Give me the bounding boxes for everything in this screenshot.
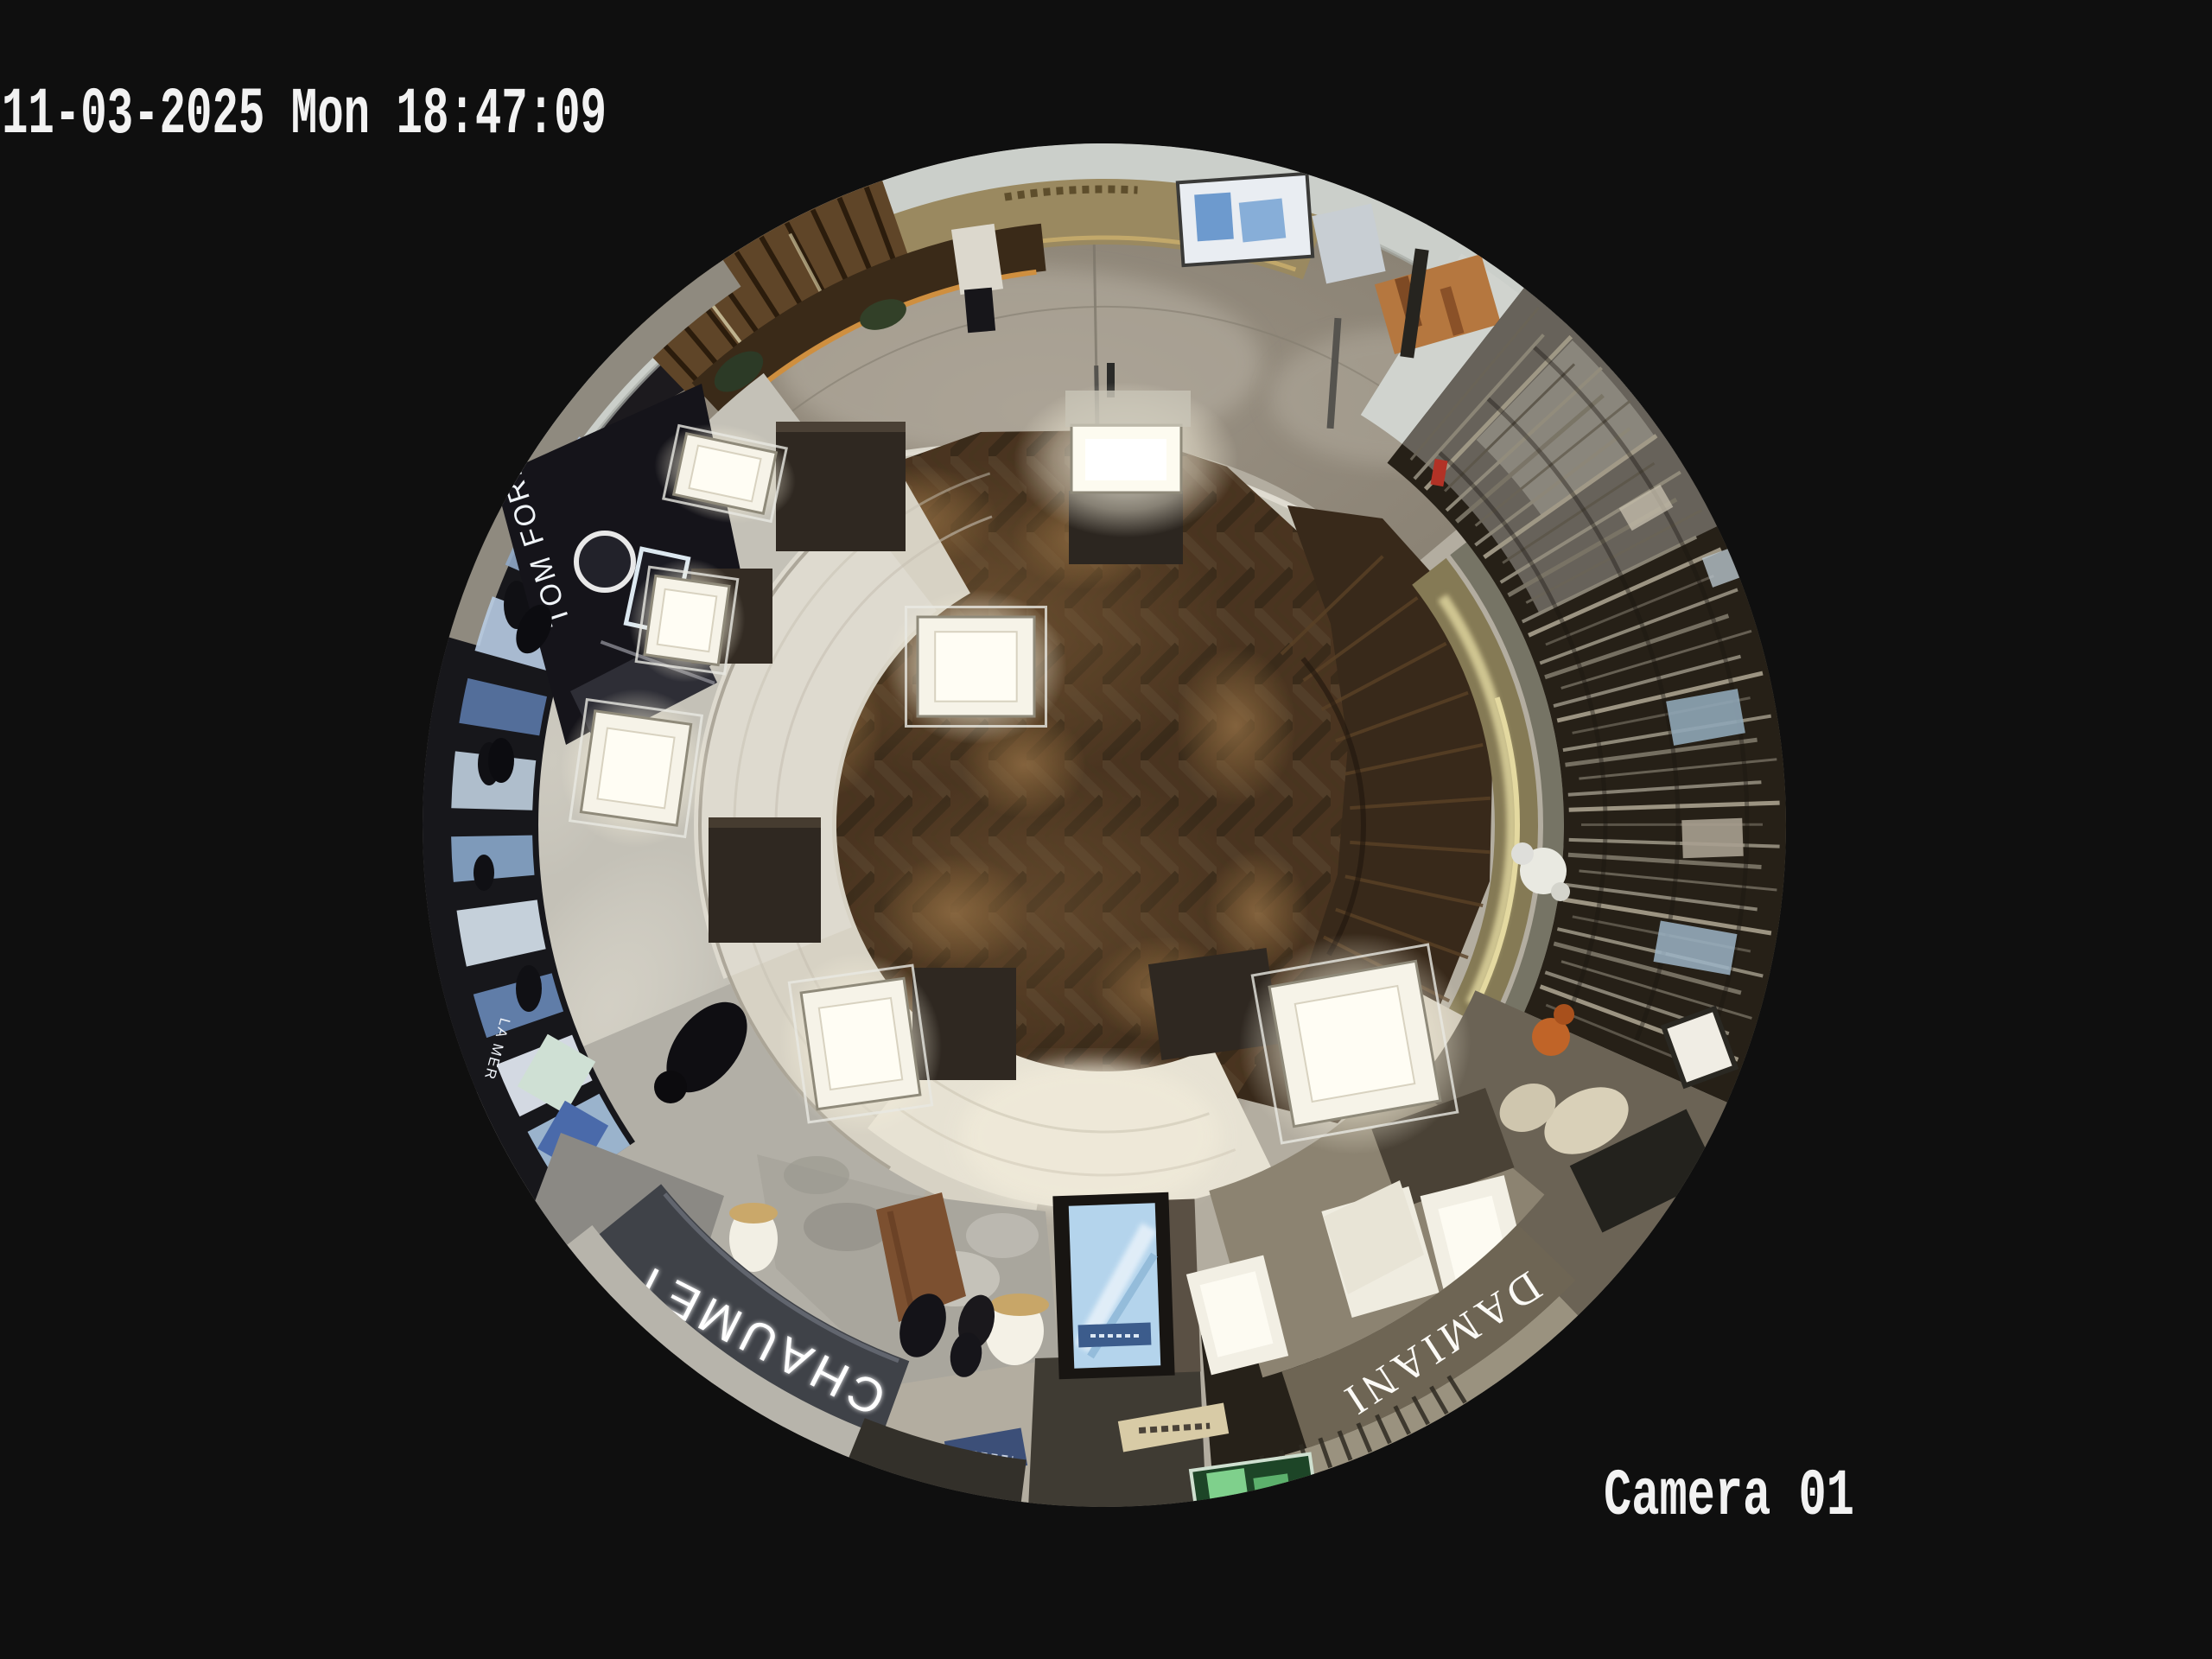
svg-text:Camera 01: Camera 01 bbox=[1604, 1459, 1854, 1534]
svg-text:11-03-2025 Mon 18:47:09: 11-03-2025 Mon 18:47:09 bbox=[2, 78, 607, 152]
